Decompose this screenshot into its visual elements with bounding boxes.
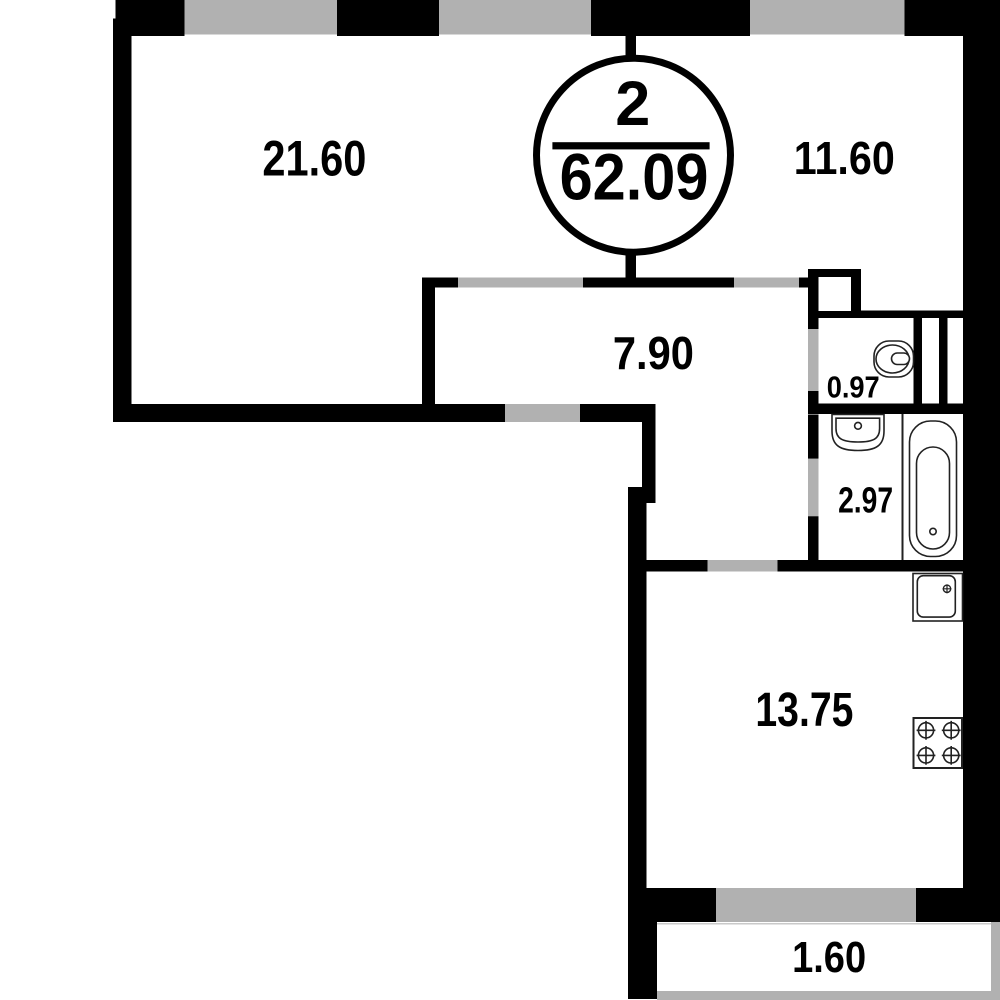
svg-text:11.60: 11.60 xyxy=(794,132,895,184)
svg-text:1.60: 1.60 xyxy=(792,933,866,982)
svg-text:21.60: 21.60 xyxy=(262,130,366,186)
svg-text:2.97: 2.97 xyxy=(838,480,893,521)
svg-text:62.09: 62.09 xyxy=(560,140,709,214)
svg-text:7.90: 7.90 xyxy=(613,327,694,379)
svg-text:13.75: 13.75 xyxy=(755,684,853,737)
svg-text:2: 2 xyxy=(615,69,650,139)
svg-text:0.97: 0.97 xyxy=(827,369,880,404)
